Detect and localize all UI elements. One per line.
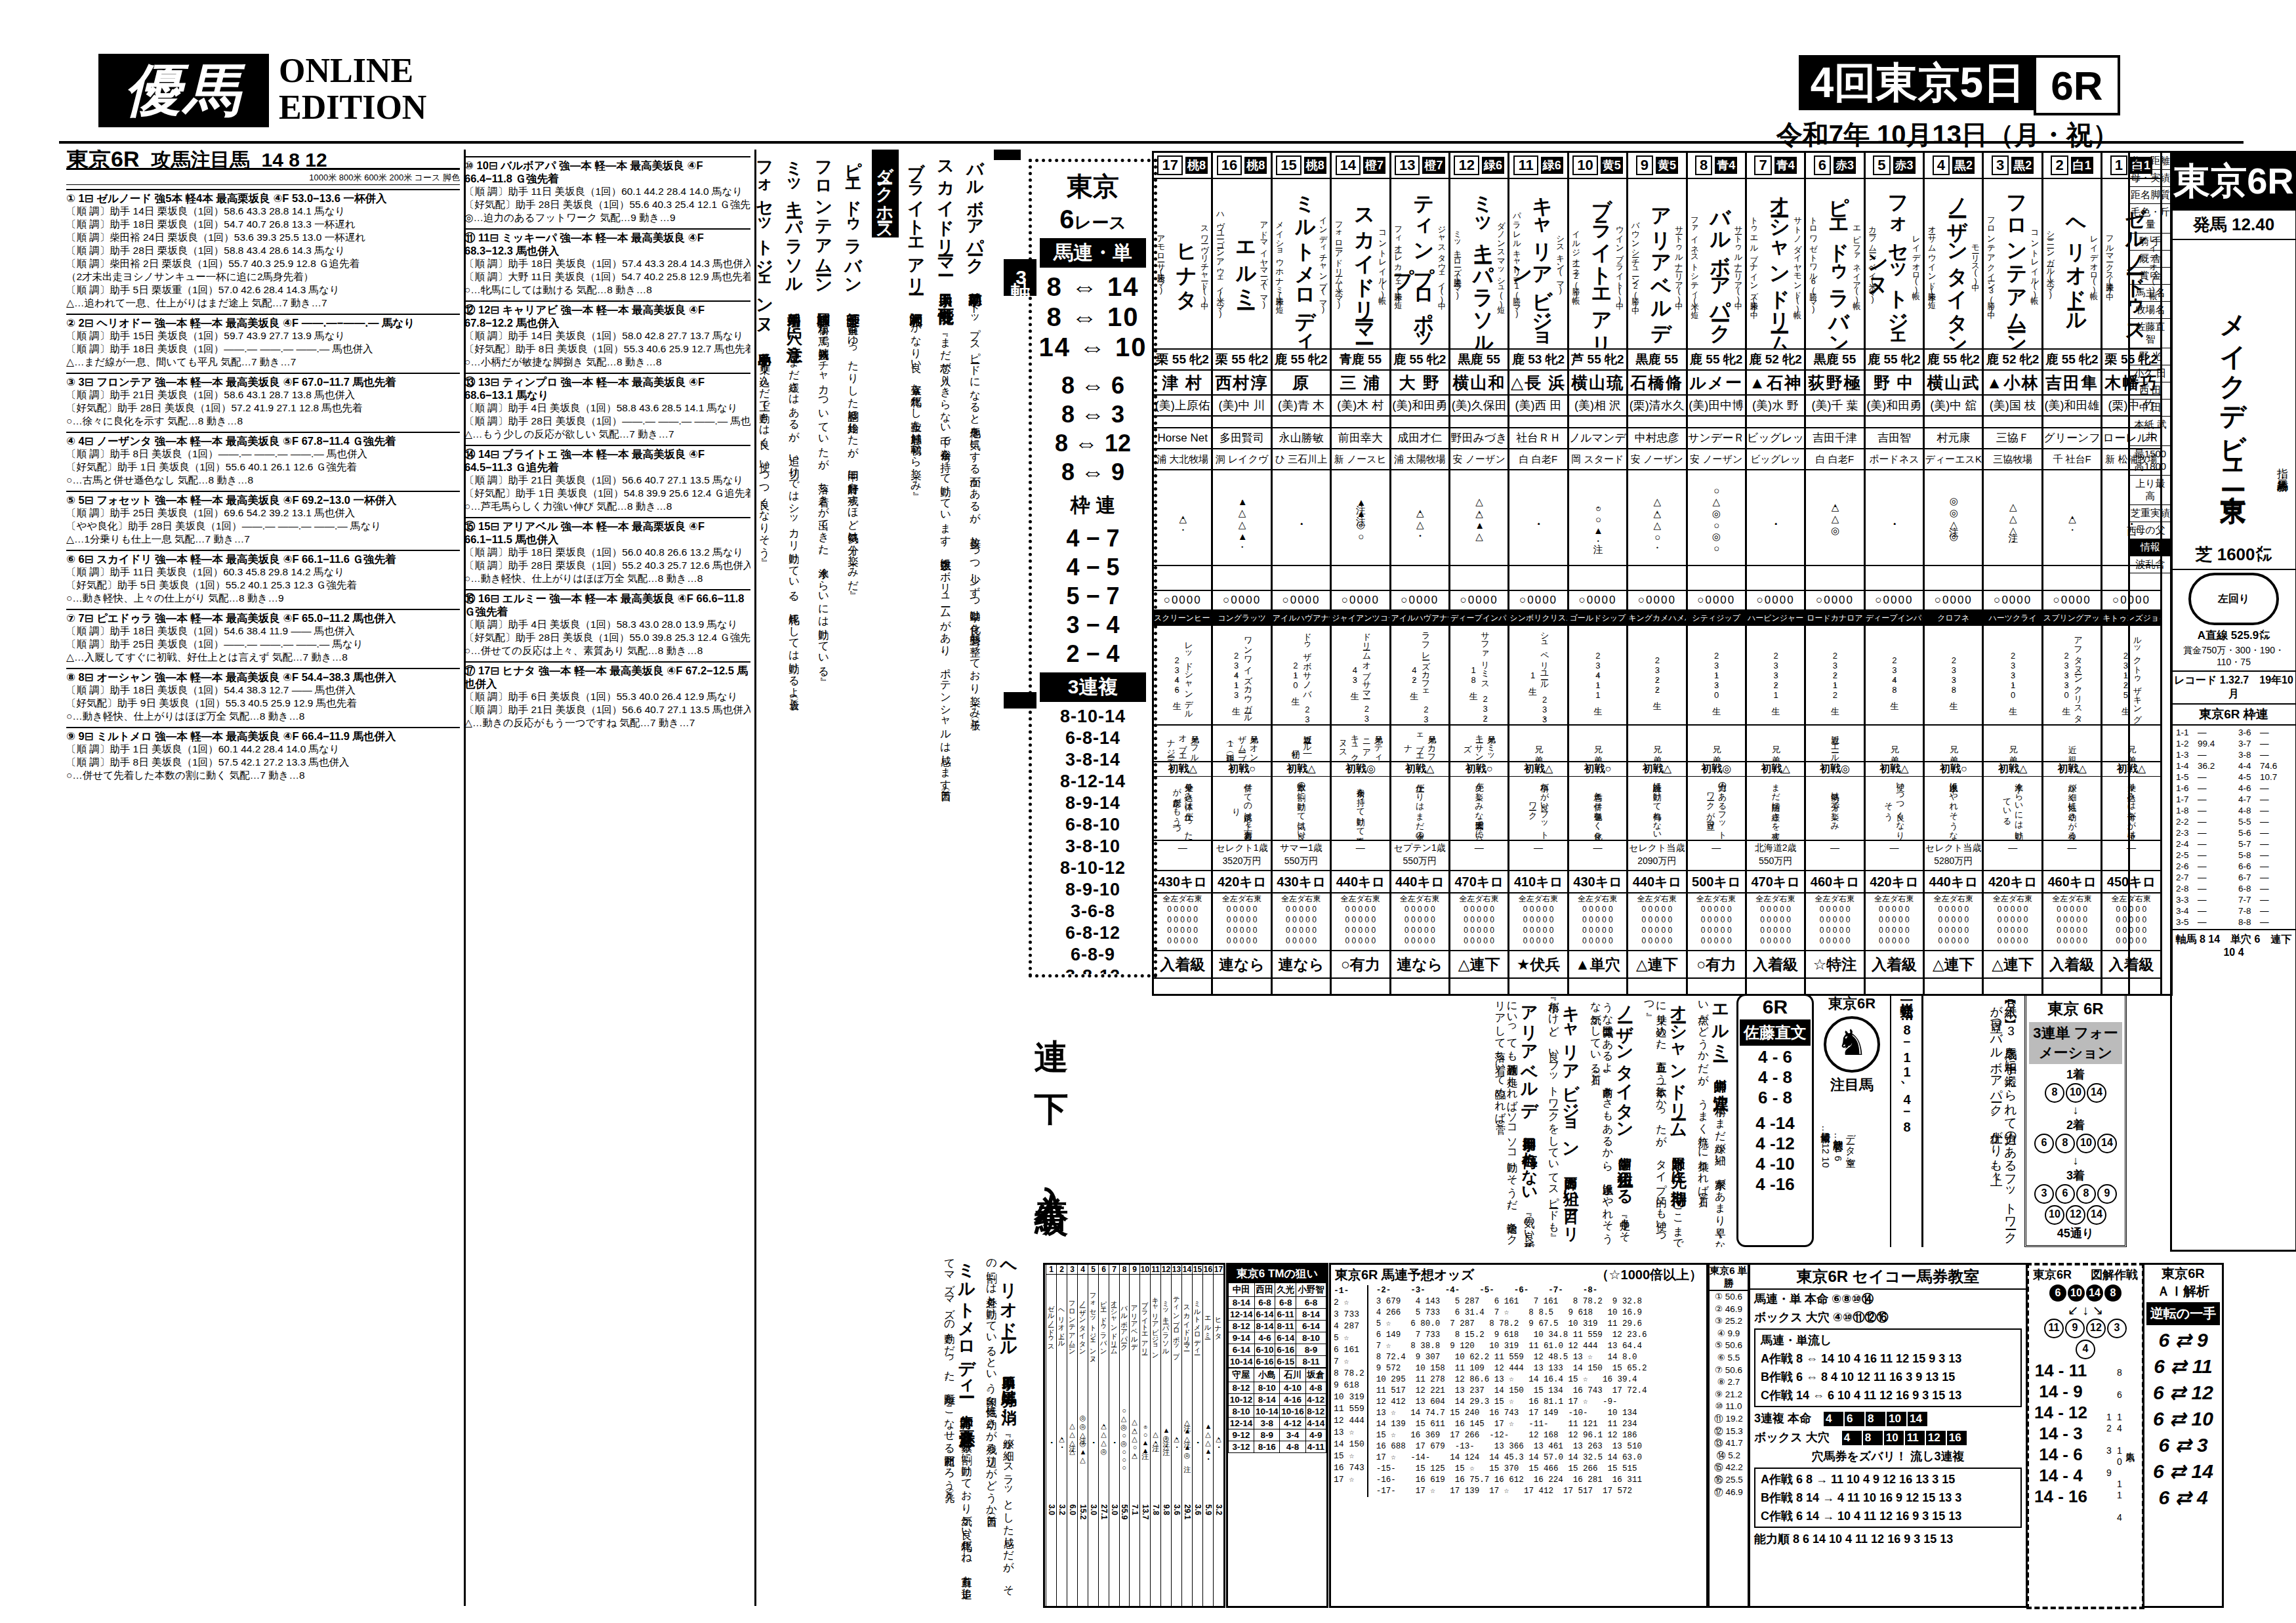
- sanrenpuku-combo: 3-6-8: [1032, 901, 1154, 922]
- breeder-name: 安 ノーザンF: [1450, 449, 1507, 470]
- tmpop-horse-name: ミッキーパラソル: [1162, 1275, 1171, 1373]
- training-row: 〔順 調〕助手 11日 美坂良（1回）60.3 45.8 29.8 14.2 馬…: [66, 565, 460, 579]
- horse-head-icon: ♞: [1824, 1016, 1880, 1073]
- tmpop-prob: 13.7: [1141, 1504, 1150, 1519]
- tmpop-column: 13ティンプロポップ・・・・・△・・3.6: [1171, 1265, 1181, 1606]
- tmnerai-pick: 6-14: [1275, 1332, 1296, 1344]
- trainer-name: (美)木 村: [1332, 396, 1389, 417]
- ippatsu-strip: 一発逆転……8－11、4－8: [1890, 994, 1916, 1247]
- santan-num: 10: [2045, 1205, 2064, 1225]
- record-head: 全左ダ右東: [2043, 894, 2101, 904]
- row-label: 佐藤直 智: [2130, 319, 2171, 348]
- record-zeros: ○0000: [1391, 591, 1448, 611]
- blank-row: [1747, 566, 1804, 591]
- tmpop-column: 12ミッキーパラソル▲注・◎・・注△9.8: [1160, 1265, 1171, 1606]
- pedigree-block: 23・3・21生: [1747, 626, 1804, 726]
- frame-chip: 黒2: [2011, 157, 2034, 174]
- record-line: 0 0 0 0 0: [1925, 914, 1982, 925]
- ai-pick: 6 ⇄ 3: [2144, 1432, 2222, 1458]
- record-line: 0 0 0 0 0: [1806, 925, 1863, 935]
- tmnerai-pick: 6-15: [1275, 1356, 1296, 1368]
- training-block: ⑰ 17⊟ ヒナタ 強―本 軽―本 最高美坂良 ④F 67.2−12.5 馬也併…: [464, 661, 750, 729]
- horse-name: スカイドリーマー: [1355, 182, 1375, 346]
- zukai-mid-num: 3: [2107, 1319, 2127, 1338]
- owner-name: Horse Net: [1154, 428, 1211, 449]
- zukai-course: 東京6R: [2033, 1267, 2072, 1283]
- pedigree-text: 23・2・2生: [1651, 626, 1663, 724]
- owner-name: 野田みづき: [1450, 428, 1507, 449]
- training-row: 〔順 調〕助手 18日 栗坂良（1回）56.0 40.8 26.6 13.2 馬…: [464, 546, 750, 559]
- record-head: 全左ダ右東: [1688, 894, 1745, 904]
- frame-chip: 緑6: [1541, 157, 1563, 174]
- breeder-name: 千 社台F: [2043, 449, 2101, 470]
- record-zeros: ○0000: [1569, 591, 1626, 611]
- tmnerai-title: 東京6 TMの狙い: [1228, 1265, 1326, 1283]
- sanrenpuku-combo: 3-8-12: [1032, 966, 1154, 977]
- evaluation-mark: ○有力: [1688, 951, 1745, 979]
- tmpop-prob: 3.2: [1057, 1504, 1067, 1515]
- training-row: 〔好気配〕助手 1日 美坂良（1回）54.8 39.9 25.6 12.4 Ｇ追…: [464, 487, 750, 500]
- wakuren-odds-row: 3-4 ―: [2176, 905, 2229, 916]
- tmpop-marks: ・・・・△・・・: [1057, 1373, 1067, 1504]
- sire-name: サートゥルナーリア(中): [1732, 180, 1744, 344]
- tmnerai-pick: 8-9: [1254, 1429, 1280, 1441]
- jockey-name: 吉田隼: [2043, 371, 2101, 396]
- horse-number: 2: [2051, 155, 2068, 175]
- sato-pick: 4 - 6: [1738, 1047, 1812, 1067]
- coat-weight: 鹿 55 牝2: [1391, 350, 1448, 371]
- odds-col1-row: 16 743: [1334, 1462, 1364, 1474]
- record-line: 0 0 0 0 0: [1213, 904, 1270, 914]
- horse-weight: 430キロ: [1273, 871, 1330, 894]
- pedigree-text: 23・4・11生: [1591, 626, 1603, 724]
- breeder-name: 三協牧場: [1984, 449, 2041, 470]
- tmnerai-pick: 6-8: [1254, 1297, 1275, 1309]
- pick-pair: 8 ⇔ 6: [1032, 371, 1154, 400]
- dam-name: カーフムーンベイ米(マ): [1867, 180, 1878, 344]
- tm-marks: △△注△・・: [1984, 470, 2041, 566]
- row-label: 小久 田: [2130, 365, 2171, 382]
- tansho-odds: ⑧ 2.7: [1710, 1376, 1748, 1389]
- wakuren-odds-row: 1-4 36.2: [2176, 760, 2229, 771]
- dam-name: フォローアドリーム米(マ): [1333, 180, 1344, 344]
- tansho-odds: ① 50.6: [1710, 1291, 1748, 1304]
- jockey-name: 石橋脩: [1628, 371, 1685, 396]
- record-line: 0 0 0 0 0: [1866, 925, 1923, 935]
- tansho-odds: ⑮ 42.2: [1710, 1462, 1748, 1474]
- siblings: 近親 エール: [1806, 726, 1863, 762]
- dam-name: ハヴユーゴーンアウェイ米(マ): [1214, 180, 1225, 344]
- dam-name: パラレルキャリア1勝(マ): [1511, 180, 1522, 344]
- dam-name: イルジオーネ2勝(帳): [1570, 180, 1582, 344]
- horse-name-block: コントレイル(帳)フロンテアムーンフロンテアクイーン3勝(中): [1984, 179, 2041, 350]
- first-run-block: 初戦◎気勢は十分で楽しみ: [1806, 762, 1863, 841]
- dam-name: トロワゼトワル6勝(マ): [1807, 180, 1818, 344]
- pedigree-text: 23・3・21生: [1770, 626, 1782, 724]
- zukai-top-row: 610148: [2029, 1284, 2142, 1302]
- blank-row: [1569, 566, 1626, 591]
- horse-number: 7: [1754, 155, 1771, 175]
- sanrenpuku-combo: 6-8-10: [1032, 814, 1154, 836]
- training-row: 〔好気配〕助手 28日 美坂良（1回）55.0 39.8 25.3 12.4 Ｇ…: [464, 631, 750, 644]
- picks-race-suffix: レース: [1075, 213, 1126, 232]
- sale-price: ―: [1154, 841, 1211, 871]
- comment-block: ヘリオドール 原田助手 馬券は消し 『線が細くスラッとした感じだが、その割には意…: [985, 1252, 1021, 1599]
- tmpop-prob: 7.1: [1130, 1504, 1139, 1515]
- sanrenpuku-combo: 8-10-12: [1032, 857, 1154, 879]
- horse-name-block: モーリス(中)ノーザンタイタンオーサムウインド未勝(短): [1925, 179, 1982, 350]
- horse-name: ヘリオドール: [2066, 182, 2086, 346]
- tmnerai-pick: 10-14: [1254, 1406, 1280, 1418]
- first-run-comment: 小柄だが良いフットワーク: [1527, 777, 1550, 836]
- record-grid: 全左ダ右東0 0 0 0 00 0 0 0 00 0 0 0 00 0 0 0 …: [1984, 894, 2041, 951]
- chumoku-course: 東京6R: [1819, 994, 1885, 1014]
- tmpop-marks: △・△△○・・△: [1130, 1373, 1139, 1504]
- tansho-odds: ⑪ 19.2: [1710, 1413, 1748, 1426]
- tmpop-column: 3フロンテアムーン△△注△・・・△6.0: [1067, 1265, 1077, 1606]
- prize-blank: [1509, 417, 1567, 428]
- horse-name: バルボアパーク: [1710, 182, 1731, 346]
- tmnerai-pick: 8-9: [1296, 1344, 1326, 1356]
- tm-marks: ・・・・・・: [1273, 470, 1330, 566]
- arrow-down: ↓: [2026, 1103, 2125, 1117]
- renge-label: 連 下: [1029, 979, 1075, 1110]
- seiko-zubari-strategy: C作戦 6 14 → 10 4 11 12 16 9 3 15 13: [1757, 1507, 2019, 1525]
- sanrenpuku-combo: 8-12-14: [1032, 771, 1154, 792]
- trainer-name: (美)上原佑: [1154, 396, 1211, 417]
- seiko-strategy: B作戦 6 ⇔ 8 4 10 12 11 16 3 9 13 15: [1757, 1368, 2019, 1386]
- training-row: 〔やや良化〕助手 28日 美坂良（1回）――.― ――.― ――.― 馬なり: [66, 520, 460, 533]
- comment-speaker: 中川師: [1713, 1069, 1728, 1082]
- training-row: 〔順 調〕助手 18日 栗坂良（1回）54.7 40.7 26.8 13.3 一…: [66, 218, 460, 231]
- sato-pick: 6 - 8: [1738, 1088, 1812, 1108]
- trainer-name: (美)久保田: [1450, 396, 1507, 417]
- odds-row: 6 149 7 733 8 15.2 9 618 10 34.8 11 559 …: [1376, 1330, 1647, 1341]
- horse-name-block: コントレイル(帳)スカイドリーマーフォローアドリーム米(マ): [1332, 179, 1389, 350]
- training-row: 〔順 調〕助手 18日 美坂良（1回）54.4 38.3 12.7 ―― 馬也併…: [66, 684, 460, 697]
- tmpop-column: 10ブライトエアリー・○○▲・注・▲13.7: [1139, 1265, 1150, 1606]
- comment-text: 『トップスピードになると他馬を気にする面があるが、改善しつつ少しずつ挙動は良化。…: [970, 296, 981, 713]
- comment-speaker: 穂苅助手: [968, 283, 983, 296]
- dam-name: シーニーンガール米(マ): [2045, 180, 2056, 344]
- horse-number: 15: [1276, 155, 1301, 175]
- record-line: 0 0 0 0 0: [1509, 935, 1567, 946]
- horse-column: 10黄5ウインブライト(中)ブライトエアリーイルジオーネ2勝(帳)芦 55 牝2…: [1569, 153, 1628, 994]
- tmpop-horse-num: 4: [1078, 1265, 1088, 1275]
- first-run-comment: 古馬と併せ遜色なく良化: [1591, 777, 1603, 836]
- sire-name: アドマイヤマーズ(マ): [1258, 180, 1269, 344]
- tmpop-marks: ○△◎○◎○○○: [1120, 1373, 1129, 1504]
- pedigree-block: 23・4・11生: [1569, 626, 1626, 726]
- odds-col1-row: 17 ☆: [1334, 1474, 1364, 1486]
- pedigree-text: 23・2・12生: [1829, 626, 1841, 724]
- breeder-name: 安 ノーザンF: [1628, 449, 1685, 470]
- tm-marks: ・・・・・・: [1509, 470, 1567, 566]
- first-run-mark: 初戦△: [1866, 762, 1923, 777]
- training-row: 〔順 調〕助手 25日 美坂良（1回）――.― ――.― ――.― 馬なり: [66, 638, 460, 651]
- wakuren-odds-row: 2-3 ―: [2176, 827, 2229, 838]
- tmnerai-pick: 3-12: [1229, 1441, 1254, 1453]
- dam-name: ファイネストシティ米(短): [1689, 180, 1700, 344]
- tm-popularity-panel: 17ヒナタ・・・・△・・・3.216エルミー・▲△△▲・・・5.915ミルトメロ…: [1043, 1263, 1225, 1608]
- zukai-pair: 14 - 3: [2034, 1423, 2087, 1444]
- comment-horse: ブライトエアリー: [907, 150, 926, 302]
- sale-price: ―: [1984, 841, 2041, 871]
- training-row: 〔順 調〕助手 21日 美坂良（1回）58.6 43.1 28.7 13.8 馬…: [66, 388, 460, 401]
- odds-row: -17- 17 ☆ 17 139 17 ☆ 17 412 17 517 17 5…: [1376, 1486, 1647, 1497]
- trainer-name: (美)国 枝: [1984, 396, 2041, 417]
- record-line: 0 0 0 0 0: [1273, 914, 1330, 925]
- blank-row: [2043, 566, 2101, 591]
- sanrenpuku-combo: 8-9-10: [1032, 879, 1154, 901]
- row-label: 牧場名: [2130, 302, 2171, 319]
- pedigree-block: ドリームオブサマー 23・4・3生: [1332, 626, 1389, 726]
- tmnerai-pick: 8-14: [1229, 1297, 1255, 1309]
- sale-price: ―: [1866, 841, 1923, 871]
- wakuren-odds-row: 1-1 ―: [2176, 727, 2229, 738]
- coat-weight: 鹿 53 牝2: [1509, 350, 1567, 371]
- record-head: 全左ダ右東: [1569, 894, 1626, 904]
- pick-pair: 8 ⇔ 12: [1032, 429, 1154, 458]
- tmpop-column: 7オーシャンドリーム・・・・・・・・3.0: [1109, 1265, 1119, 1606]
- santan-num: 8: [2055, 1134, 2075, 1153]
- training-block-header: ① 1⊟ ゼルノード 強5本 軽4本 最高栗坂良 ④F 53.0−13.6 一杯…: [66, 189, 460, 205]
- odds-title-text: 東京6R 馬連予想オッズ: [1335, 1266, 1475, 1284]
- zukai-top-num: 14: [2086, 1284, 2103, 1302]
- tmpop-horse-name: ティンプロポップ: [1172, 1275, 1181, 1373]
- record-head: 全左ダ右東: [1450, 894, 1507, 904]
- seiko-s1-num: 10: [1887, 1412, 1906, 1426]
- first-run-comment: 水準以上にやれそうな雰囲気: [1948, 777, 1959, 836]
- horse-weight: 410キロ: [1509, 871, 1567, 894]
- ai-pick: 6 ⇄ 9: [2144, 1327, 2222, 1353]
- breeder-name: 安 ノーザンF: [1688, 449, 1745, 470]
- odds-row: -16- 16 619 16 75.7 16 612 16 224 16 281…: [1376, 1475, 1647, 1486]
- record-line: 0 0 0 0 0: [1213, 925, 1270, 935]
- comment-block: エルミー 中川師 連穴 『小柄でまだ線が細い。家系があまり早くない点がどうかだが…: [1697, 994, 1732, 1247]
- comment-horse: ノーザンタイタン: [1615, 994, 1635, 1147]
- horse-number: 4: [1933, 155, 1950, 175]
- tmpop-column: 2ヘリオドール・・・・△・・・3.2: [1056, 1265, 1067, 1606]
- tm-marks-string: ・○○▲・注: [1591, 473, 1604, 565]
- wakuren-odds-row: 5-5 ―: [2238, 816, 2291, 827]
- record-grid: 全左ダ右東0 0 0 0 00 0 0 0 00 0 0 0 00 0 0 0 …: [1154, 894, 1211, 951]
- tm-marks-string: ・・・・・・: [1295, 473, 1307, 565]
- breeder-name: ひ 三石川上牧場: [1273, 449, 1330, 470]
- tansho-title: 東京6 単勝: [1710, 1265, 1748, 1291]
- siblings: 兄 弟: [1688, 726, 1745, 762]
- record-zeros: ○0000: [1332, 591, 1389, 611]
- trainer-name: (美)千 葉: [1806, 396, 1863, 417]
- record-line: 0 0 0 0 0: [1984, 904, 2041, 914]
- santan-course: 東京 6R: [2026, 996, 2125, 1019]
- evaluation-mark: △連下: [1450, 951, 1507, 979]
- pedigree-block: 23・3・10生: [1984, 626, 2041, 726]
- broodmare-sire: アイルハヴアナザー: [1391, 611, 1448, 626]
- tmnerai-tm-name: 石川: [1280, 1368, 1305, 1382]
- training-block-header: ⑭ 14⊟ ブライトエ 強―本 軽―本 最高美坂良 ④F 64.5−11.3 Ｇ…: [464, 445, 750, 474]
- record-line: 0 0 0 0 0: [1569, 925, 1626, 935]
- wakuren-odds-row: 3-8 ―: [2238, 749, 2291, 760]
- first-run-comment: 余裕を持って動けて数字以上: [1355, 777, 1366, 836]
- tm-marks: ・・・△△◎: [1806, 470, 1863, 566]
- tmpop-horse-name: キャリアビジョン: [1151, 1275, 1160, 1373]
- dam-name: トゥエルブナインズ未勝(中): [1748, 180, 1759, 344]
- prize-blank: [1866, 417, 1923, 428]
- wakuren-odds-row: 2-6 ―: [2176, 861, 2229, 872]
- siblings: 兄 弟: [1628, 726, 1685, 762]
- pedigree-block: サファリミス 23・2・18生: [1450, 626, 1507, 726]
- chumoku-line: 最新情報…9 12 10: [1819, 1098, 1832, 1196]
- horse-weight: 440キロ: [1332, 871, 1389, 894]
- odds-body: -1-2 ☆3 7334 2875 ☆6 1617 ☆8 78.29 61810…: [1331, 1285, 1706, 1497]
- wakuren-odds-row: 2-8 ―: [2176, 883, 2229, 894]
- coat-weight: 青鹿 55 牝2: [1332, 350, 1389, 371]
- sale-price: セレクト当歳 5280万円: [1925, 841, 1982, 871]
- record-line: 0 0 0 0 0: [1688, 904, 1745, 914]
- wakuren-odds-list: 1-1 ―1-2 99.41-3 ―1-4 36.21-5 ―1-6 ―1-7 …: [2172, 726, 2295, 929]
- odds-grid: -2- -3- -4- -5- -6- -7- -8-3 679 4 143 5…: [1374, 1285, 1650, 1497]
- first-run-mark: 初戦◎: [1688, 762, 1745, 777]
- coat-weight: 鹿 52 牝2: [1984, 350, 2041, 371]
- breeder-name: 新 ノースヒルズ: [1332, 449, 1389, 470]
- seiko-zubari-strategy: B作戦 8 14 → 4 11 10 16 9 12 15 13 3: [1757, 1489, 2019, 1507]
- siblings: 兄弟 ミッキーサンズ: [1450, 726, 1507, 762]
- record-line: 0 0 0 0 0: [1332, 904, 1389, 914]
- sire-name: コントレイル(帳): [2029, 180, 2040, 344]
- wakuren-odds-row: 4-7 ―: [2238, 794, 2291, 805]
- horse-column: 8青4サートゥルナーリア(中)バルボアパークファイネストシティ米(短)鹿 55 …: [1688, 153, 1747, 994]
- training-block: ④ 4⊟ ノーザンタ 強―本 軽―本 最高美坂良 ⑤F 67.8−11.4 Ｇ強…: [66, 432, 460, 487]
- odds-col1-row: 15 ☆: [1334, 1450, 1364, 1462]
- sale-price: ―: [1688, 841, 1745, 871]
- record-head: 全左ダ右東: [1925, 894, 1982, 904]
- training-block: ⑨ 9⊟ ミルトメロ 強―本 軽―本 最高美坂良 ④F 66.4−11.9 馬也…: [66, 727, 460, 782]
- tmpop-column: 14スカイドリーマー注△▲注△▲◎注29.1: [1181, 1265, 1192, 1606]
- training-block-header: ⑩ 10⊟ バルボアパ 強―本 軽―本 最高美坂良 ④F 66.4−11.8 Ｇ…: [464, 156, 750, 185]
- tmpop-horse-num: 12: [1161, 1265, 1171, 1275]
- tmpop-prob: 3.2: [1214, 1504, 1223, 1515]
- horse-number: 11: [1513, 155, 1538, 175]
- tmpop-horse-name: ブライトエアリー: [1141, 1275, 1150, 1373]
- prize-blank: [1273, 417, 1330, 428]
- tmnerai-pick: 8-10: [1296, 1332, 1326, 1344]
- sire-name: インディチャンプ(マ): [1317, 180, 1328, 344]
- jockey-name: 原: [1273, 371, 1330, 396]
- seiko-ability-order: 能力順 8 6 14 10 4 11 12 16 9 3 15 13: [1750, 1530, 2026, 1548]
- ai-pick: 6 ⇄ 4: [2144, 1485, 2222, 1511]
- pedigree-block: 23・3・8生: [1925, 626, 1982, 726]
- owner-name: グリーンファーム: [2043, 428, 2101, 449]
- tmnerai-pick: 8-14: [1254, 1321, 1275, 1332]
- record-zeros: ○0000: [1925, 591, 1982, 611]
- tmnerai-row: 8-1010-1410-168-12: [1229, 1406, 1326, 1418]
- tmnerai-pick: 10-14: [1229, 1356, 1255, 1368]
- training-block-header: ⑤ 5⊟ フォセット 強―本 軽―本 最高美坂良 ④F 69.2−13.0 一杯…: [66, 491, 460, 506]
- zukai-mid-row: 119123: [2029, 1318, 2142, 1339]
- seiko-s2-num: 12: [1926, 1431, 1946, 1445]
- tmnerai-pick: 4-10: [1280, 1382, 1305, 1394]
- horse-name-block: アドマイヤマーズ(マ)エルミーハヴユーゴーンアウェイ米(マ): [1213, 179, 1270, 350]
- mid-comments: エルミー 中川師 連穴 『小柄でまだ線が細い。家系があまり早くない点がどうかだが…: [1152, 994, 1732, 1247]
- santan-total: 45通り: [2026, 1225, 2125, 1241]
- wakuren-odds-row: 7-7 ―: [2238, 894, 2291, 905]
- comment-horse: フォセットジェンヌ: [755, 150, 775, 342]
- betting-picks-box: 東京6レース馬連・単8 ⇔ 148 ⇔ 1014 ⇔ 108 ⇔ 68 ⇔ 38…: [1029, 159, 1157, 977]
- row-label: 父・距離: [2130, 153, 2171, 170]
- horse-number: 1: [2110, 155, 2127, 175]
- record-line: 0 0 0 0 0: [1628, 935, 1685, 946]
- tm-marks-string: △・△・▲△: [1473, 473, 1485, 565]
- tmpop-marks: ・・・・・・・・: [1046, 1373, 1056, 1504]
- blank-row: [1154, 566, 1211, 591]
- siblings: 兄 弟: [1509, 726, 1567, 762]
- tmpop-horse-num: 9: [1130, 1265, 1139, 1275]
- tmpop-horse-name: オーシャンドリーム: [1110, 1275, 1119, 1373]
- training-column-1: 東京6R攻馬注目馬14 8 121000米 800米 600米 200米 コース…: [62, 150, 466, 1606]
- row-label: 上り最高: [2130, 476, 2171, 505]
- prize-blank: [1569, 417, 1626, 428]
- wakuren-odds-row: 3-7 ―: [2238, 738, 2291, 749]
- sato-pick: 4 -16: [1738, 1174, 1812, 1195]
- tmpop-column: 5フォセットジェンヌ・・・・・・・・3.0: [1088, 1265, 1098, 1606]
- training-block: ⑦ 7⊟ ピエドゥラ 強―本 軽―本 最高美坂良 ④F 65.0−11.2 馬也…: [66, 609, 460, 664]
- odds-row: 17 ☆ -14- 14 124 14 45.3 14 57.0 14 32.5…: [1376, 1452, 1647, 1464]
- tmpop-prob: 3.6: [1172, 1504, 1181, 1515]
- broodmare-sire: ディープインパクト: [1450, 611, 1507, 626]
- odds-row: 15 ☆ 16 369 17 266 -12- 12 168 12 96.1 1…: [1376, 1430, 1647, 1441]
- comment-text: 『小柄な馬で入厩当初はチャカついていたが、落ち着きが出てきた。水準くらいには動け…: [818, 316, 830, 671]
- record-line: 0 0 0 0 0: [1509, 904, 1567, 914]
- horse-column: 14橙7コントレイル(帳)スカイドリーマーフォローアドリーム米(マ)青鹿 55 …: [1332, 153, 1391, 994]
- zukai-mid-num: 11: [2044, 1319, 2064, 1338]
- comment-lead: 可能性も: [937, 297, 955, 330]
- horse-number: 5: [1873, 155, 1890, 175]
- comment-speaker: 太田助手: [939, 283, 953, 297]
- row-label: 本紙 武井: [2130, 417, 2171, 446]
- wakuren-pair: 3 − 4: [1032, 611, 1154, 640]
- training-row: 〔順 調〕助手 18日 美坂良（1回）57.4 43.3 28.4 14.3 馬…: [464, 257, 750, 270]
- tmnerai-pick: 4-8: [1305, 1382, 1326, 1394]
- tmpop-horse-name: ノーザンタイタン: [1078, 1275, 1088, 1373]
- training-note: ○…芦毛馬らしく力強い伸び 気配…8 動き…8: [464, 500, 750, 513]
- odds-col1-row: 13 ☆: [1334, 1427, 1364, 1439]
- pedigree-block: アフタヌーンクリスタ 23・3・30生: [2043, 626, 2101, 726]
- broodmare-sire: ロードカナロア: [1806, 611, 1863, 626]
- first-run-block: 初戦◎余裕を持って動けて数字以上: [1332, 762, 1389, 841]
- record-line: 0 0 0 0 0: [1450, 935, 1507, 946]
- horse-header: 17桃8: [1154, 153, 1211, 179]
- comment-speaker: 青木師: [960, 1405, 974, 1418]
- siblings-text: 兄弟 ミッキーサンズ: [1462, 726, 1497, 761]
- sale-price: セレクト1歳 3520万円: [1213, 841, 1270, 871]
- siblings: 兄弟 オンザムーブ（1勝）（現）: [1213, 726, 1270, 762]
- record-head: 全左ダ右東: [1509, 894, 1567, 904]
- training-block: ⑯ 16⊟ エルミー 強―本 軽―本 最高美坂良 ④F 66.6−11.8 Ｇ強…: [464, 589, 750, 657]
- tmnerai-pick: 8-14: [1296, 1309, 1326, 1321]
- siblings-text: 兄 弟: [1651, 726, 1663, 761]
- tansho-odds: ② 46.9: [1710, 1304, 1748, 1316]
- jockey-name: 大 野: [1391, 371, 1448, 396]
- record-line: 0 0 0 0 0: [1688, 935, 1745, 946]
- horse-column: 4黒2モーリス(中)ノーザンタイタンオーサムウインド未勝(短)鹿 55 牝2横山…: [1925, 153, 1984, 994]
- horse-name-block: シスキン(マ)キャリアビジョンパラレルキャリア1勝(マ): [1509, 179, 1567, 350]
- row-label: 芝重実績: [2130, 505, 2171, 522]
- wakuren-odds-row: 5-7 ―: [2238, 838, 2291, 850]
- record-line: 0 0 0 0 0: [1332, 935, 1389, 946]
- breeder-name: ポードネスト: [1866, 449, 1923, 470]
- owner-name: 村元康: [1925, 428, 1982, 449]
